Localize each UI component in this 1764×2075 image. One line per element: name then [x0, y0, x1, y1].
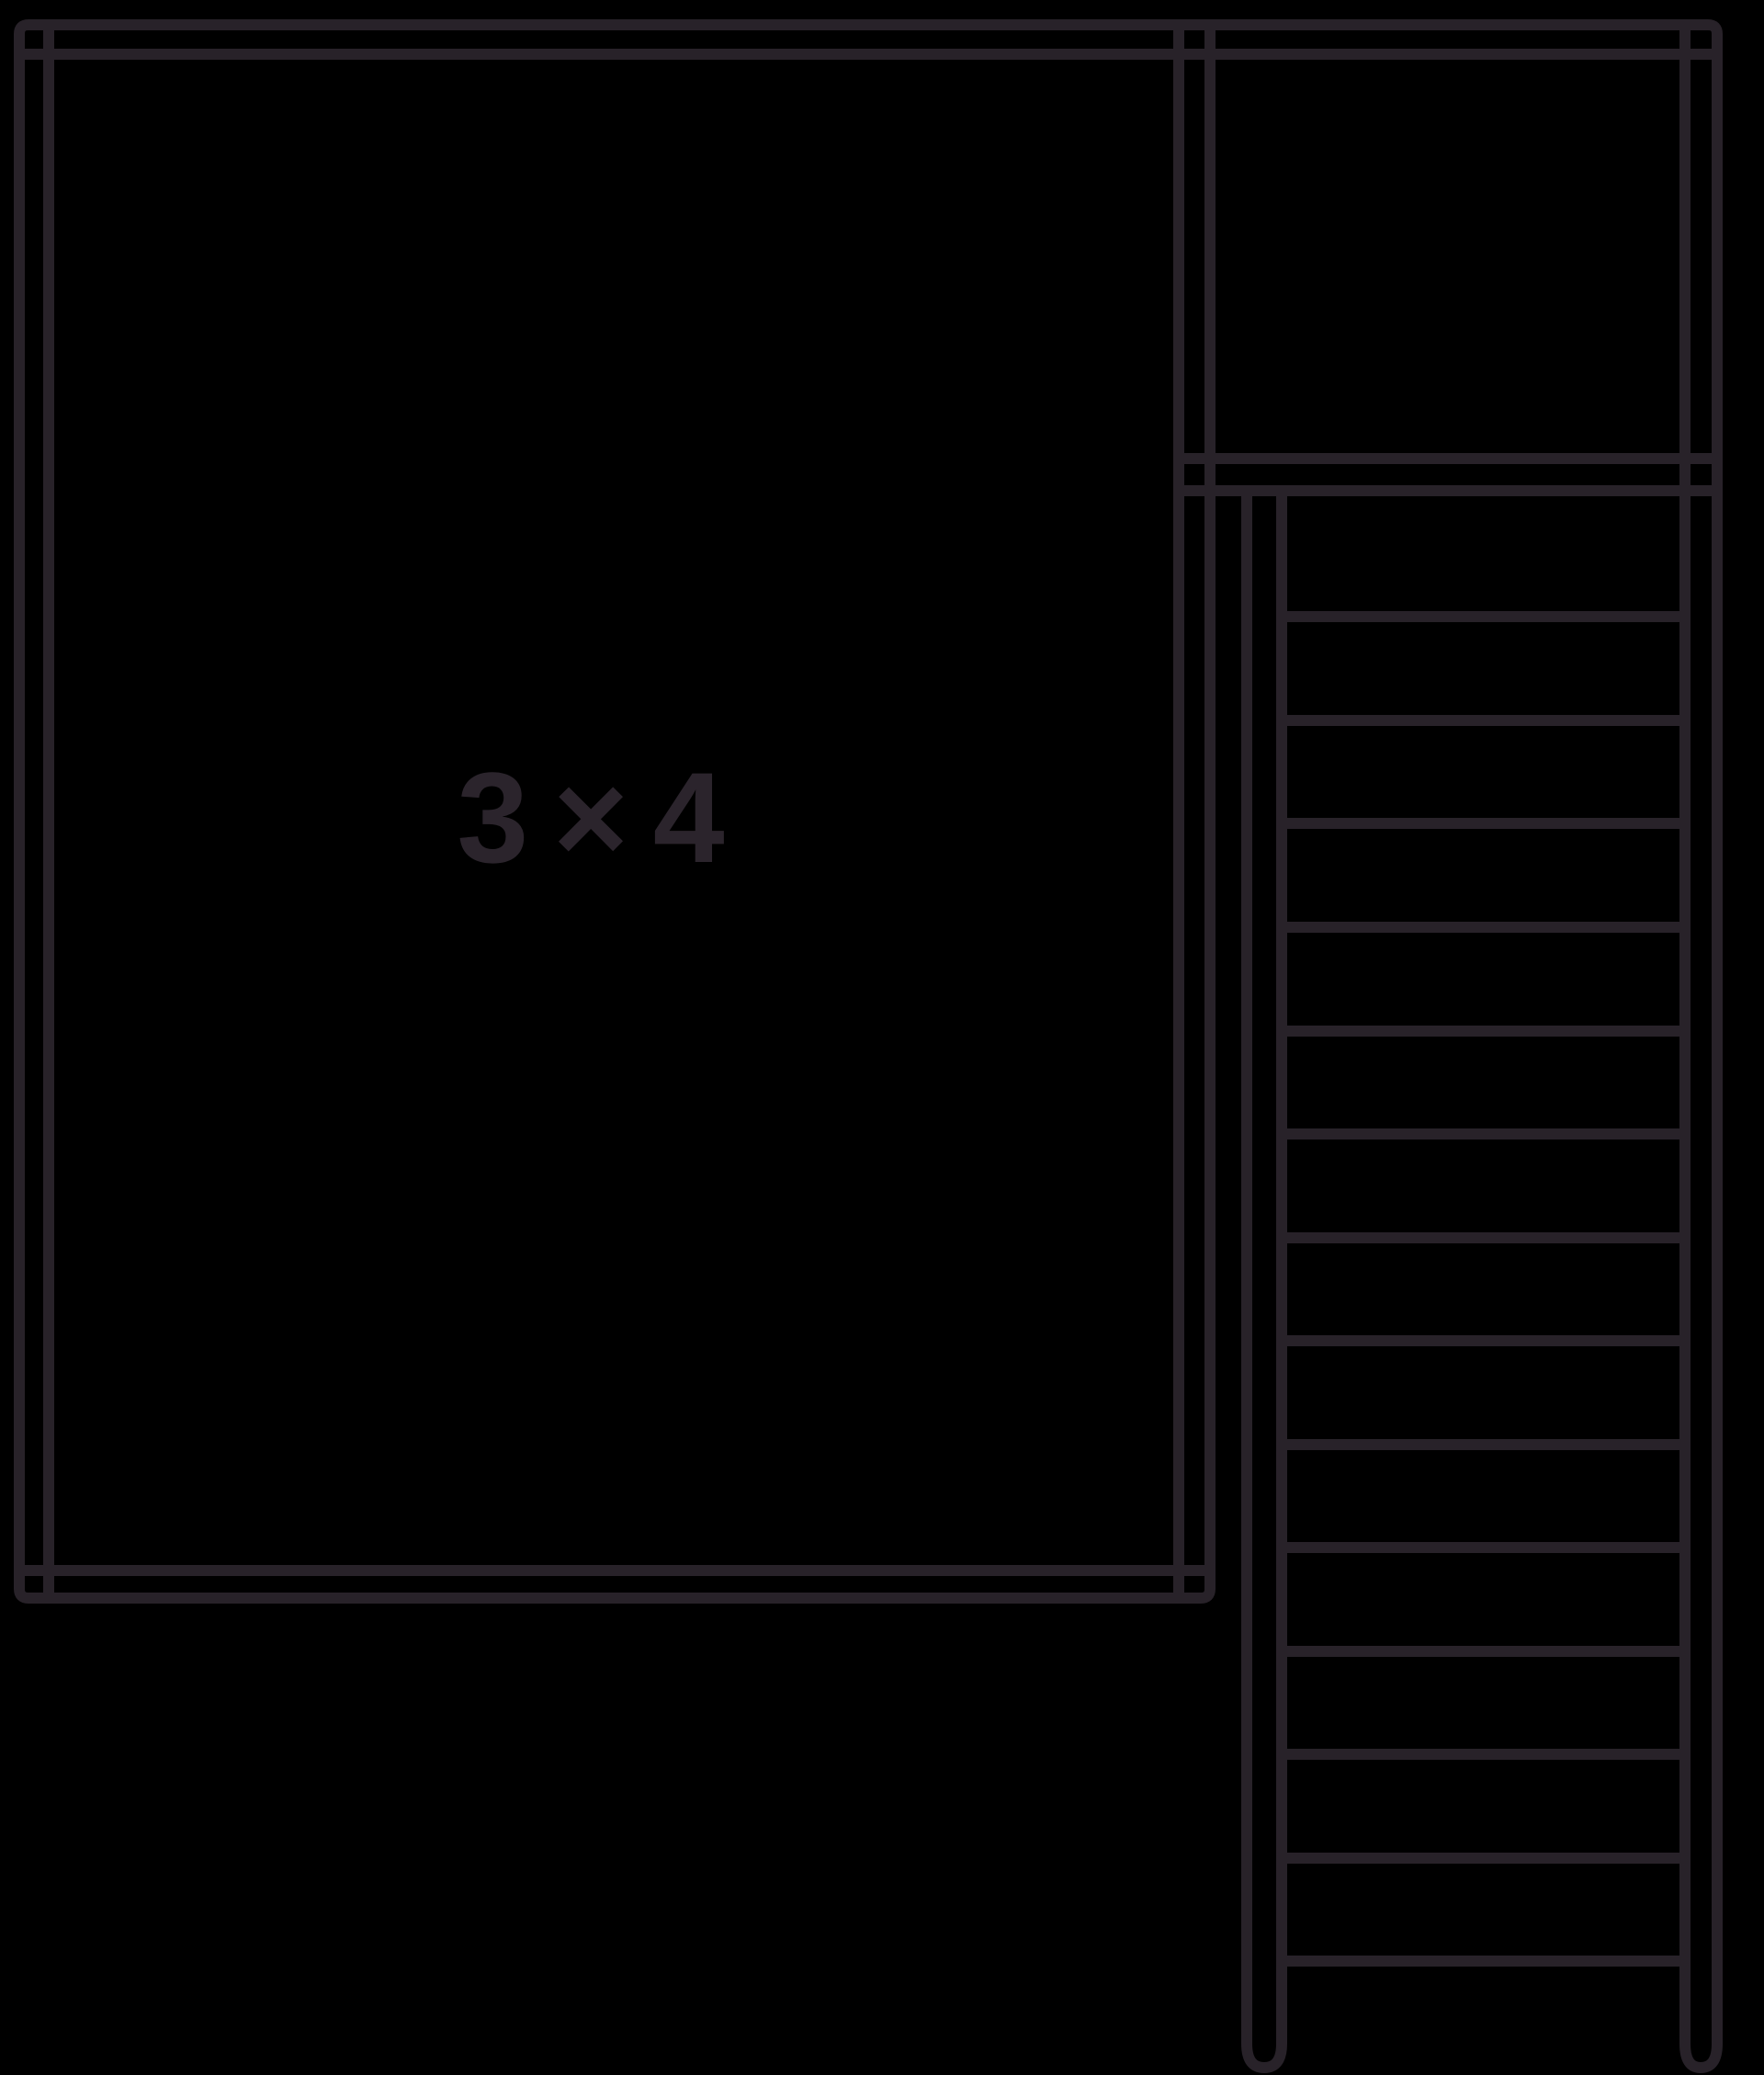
floor-plan: 3 × 4: [0, 0, 1764, 2075]
outer-wall-path: [19, 25, 1717, 2068]
walls: [14, 19, 1723, 2068]
stair-stringer-path: [1247, 491, 1282, 2068]
room-dimension-label: 3 × 4: [457, 745, 724, 890]
floor-plan-page: 3 × 4: [0, 0, 1764, 2075]
staircase: [1247, 491, 1679, 2068]
